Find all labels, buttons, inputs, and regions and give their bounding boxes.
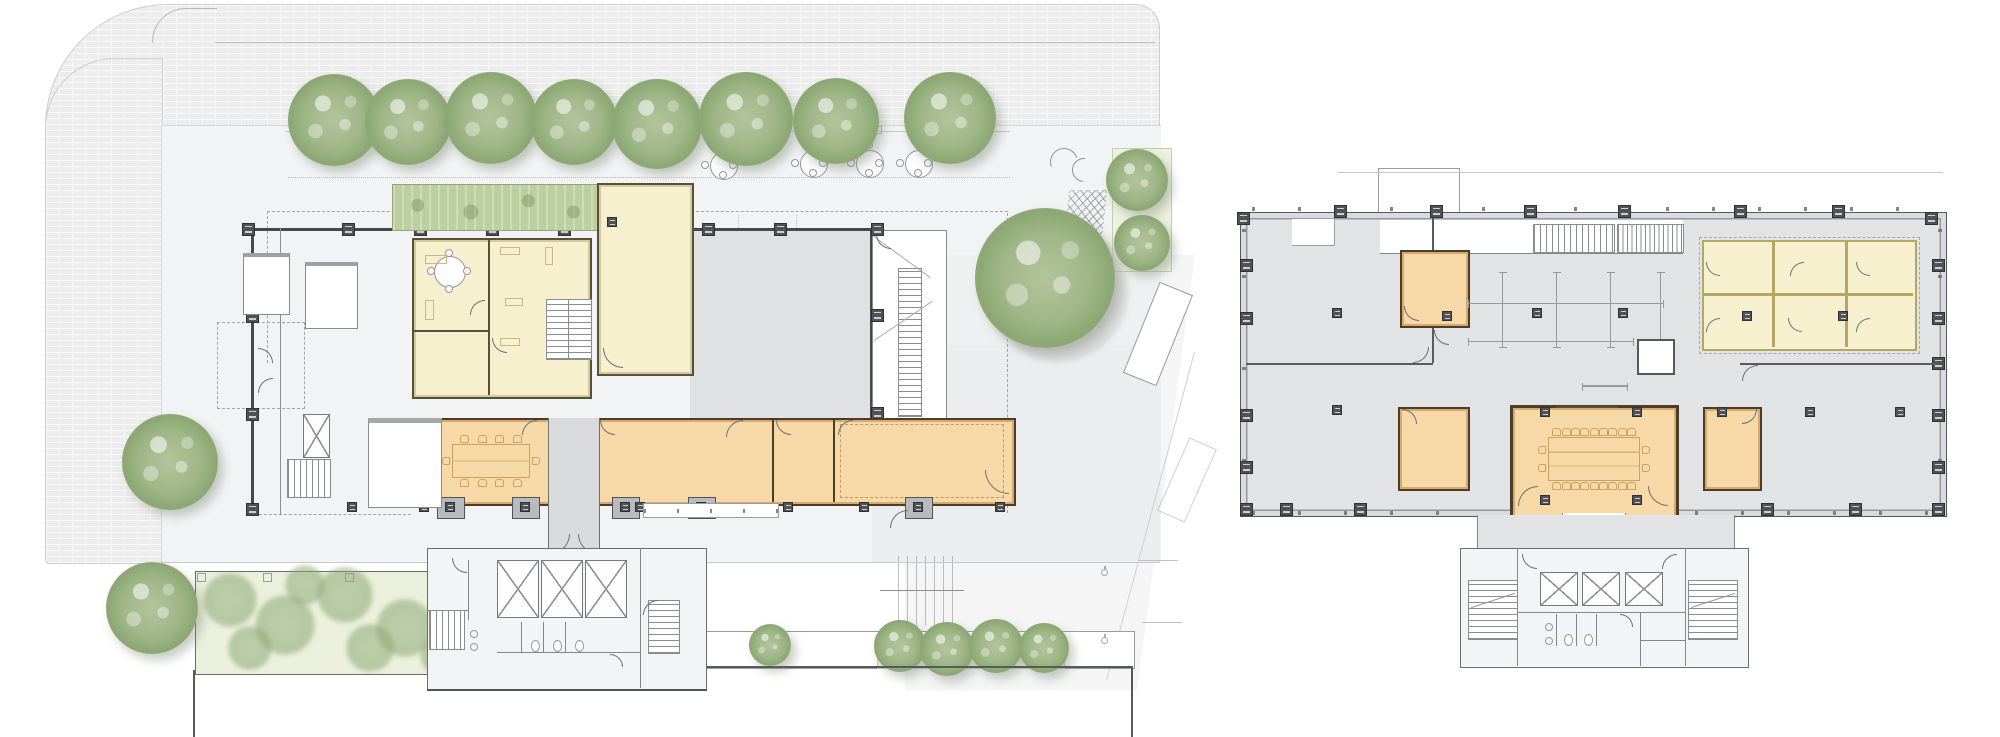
- cafe-chair: [701, 161, 709, 169]
- roof-hedge-strip: [392, 184, 599, 231]
- meeting-chair: [427, 267, 435, 275]
- stair-divider: [568, 299, 569, 358]
- elevator-shaft: [1625, 572, 1663, 606]
- partition-track: [1502, 272, 1503, 348]
- band-wall: [772, 418, 774, 502]
- elevator-shaft: [497, 560, 539, 618]
- office-stair: [546, 299, 592, 360]
- core-wall: [1517, 612, 1685, 613]
- street-tree: [365, 79, 451, 165]
- column-marker: [1240, 503, 1253, 516]
- column-marker: [1632, 407, 1642, 417]
- access-ramp: [898, 556, 958, 626]
- toilet-fixture: [531, 640, 540, 652]
- toilet-stall: [521, 622, 522, 652]
- column-marker: [1925, 212, 1938, 225]
- conference-chair: [513, 479, 522, 487]
- office-desk: [425, 255, 447, 264]
- column-marker: [1334, 205, 1347, 218]
- column-marker: [1717, 407, 1727, 417]
- cafe-chair: [875, 159, 883, 167]
- toilet-stall: [1596, 614, 1597, 646]
- column-marker: [1932, 259, 1945, 272]
- column-marker: [1280, 503, 1293, 516]
- column-marker: [774, 223, 787, 236]
- column-marker: [1442, 311, 1452, 321]
- elevator-shaft: [585, 560, 627, 618]
- conference-chair: [1571, 482, 1580, 490]
- conference-chair: [1627, 482, 1636, 490]
- partition-track: [1556, 272, 1557, 348]
- bed-shrub: [203, 573, 257, 627]
- column-marker: [1332, 308, 1342, 318]
- conference-chair: [460, 435, 469, 443]
- office-desk: [500, 247, 520, 255]
- conference-chair: [1580, 428, 1589, 436]
- elevator-shaft: [1540, 572, 1578, 606]
- bed-planter-box: [263, 573, 272, 582]
- street-tree: [531, 79, 617, 165]
- core-wall: [1517, 548, 1518, 666]
- canopy-dashed-rect: [217, 322, 305, 409]
- column-marker: [607, 217, 617, 227]
- partition-track: [1582, 385, 1628, 387]
- courtyard-tree: [975, 208, 1115, 348]
- conference-chair: [495, 479, 504, 487]
- conference-chair: [1552, 482, 1561, 490]
- hedge-bush: [874, 620, 926, 672]
- toilet-stall: [543, 622, 544, 652]
- core-wall: [1640, 612, 1641, 666]
- toilet-fixture: [575, 640, 584, 652]
- column-marker: [1332, 405, 1342, 415]
- conference-chair: [1590, 428, 1599, 436]
- column-marker: [1354, 503, 1367, 516]
- canopy-dashed-line: [249, 514, 411, 515]
- column-marker: [620, 502, 630, 512]
- column-marker: [1540, 407, 1550, 417]
- strip-tree: [1114, 215, 1170, 271]
- interior-wall: [1246, 363, 1433, 365]
- toilet-fixture: [553, 640, 562, 652]
- conference-chair: [1618, 482, 1627, 490]
- street-tree: [793, 78, 879, 164]
- elevator-shaft: [541, 560, 583, 618]
- planter-tree: [749, 624, 791, 666]
- bed-planter-box: [197, 573, 206, 582]
- west-stair: [287, 459, 331, 498]
- conference-chair: [1599, 482, 1608, 490]
- core-wall: [1640, 640, 1685, 641]
- street-tree: [612, 79, 702, 169]
- cafe-chair: [896, 159, 904, 167]
- toilet-stall: [565, 622, 566, 652]
- column-marker: [1430, 205, 1443, 218]
- conference-chair: [1608, 482, 1617, 490]
- core-stair: [1468, 580, 1518, 640]
- column-marker: [783, 502, 793, 512]
- operable-partition-zone: [840, 424, 1004, 498]
- bed-shrub: [346, 624, 394, 672]
- nw-notch: [1292, 219, 1335, 246]
- cafe-chair: [719, 171, 727, 179]
- stair-run: [1617, 224, 1684, 253]
- white-room: [368, 418, 442, 508]
- core-wall: [497, 652, 640, 653]
- toilet-fixture: [1584, 634, 1593, 646]
- column-marker: [1618, 308, 1628, 318]
- conference-chair: [1562, 428, 1571, 436]
- column-marker: [913, 502, 923, 512]
- conference-table-10: [452, 444, 530, 478]
- column-marker: [1240, 312, 1253, 325]
- ramp-axis: [880, 590, 964, 591]
- conference-chair: [1538, 446, 1546, 454]
- south-window-band: [643, 503, 779, 518]
- conference-chair: [1580, 482, 1589, 490]
- column-marker: [246, 503, 259, 516]
- conference-chair: [495, 435, 504, 443]
- partition-track: [1468, 303, 1664, 304]
- column-marker: [1734, 205, 1747, 218]
- conference-chair: [1642, 446, 1650, 454]
- wheelchair-icon: [1100, 634, 1109, 645]
- cafe-chair: [791, 159, 799, 167]
- column-marker: [347, 502, 357, 512]
- central-corridor: [548, 418, 600, 502]
- west-elevator: [303, 414, 330, 458]
- street-tree: [904, 72, 996, 164]
- core-stair: [429, 610, 465, 650]
- exterior-stair: [898, 268, 922, 417]
- sink: [470, 630, 478, 638]
- conference-chair: [1627, 428, 1636, 436]
- cafe-chair: [865, 169, 873, 177]
- meeting-chair: [463, 267, 471, 275]
- parking-dash: [1142, 622, 1182, 623]
- office-desk: [545, 247, 553, 265]
- partition-track: [1610, 272, 1611, 348]
- conference-chair: [1599, 428, 1608, 436]
- column-marker: [1805, 407, 1815, 417]
- parking-dash: [1138, 560, 1178, 561]
- column-marker: [1832, 205, 1845, 218]
- meeting-chair: [445, 285, 453, 293]
- conference-chair: [478, 479, 487, 487]
- bed-shrub: [228, 626, 272, 670]
- bed-planter-box: [345, 573, 354, 582]
- office-desk: [505, 298, 523, 306]
- toilet-stall: [1576, 614, 1577, 646]
- column-marker: [1240, 461, 1253, 474]
- conference-chair: [1608, 428, 1617, 436]
- sink: [1545, 637, 1553, 645]
- wheelchair-icon: [1100, 566, 1109, 577]
- strip-tree: [1106, 149, 1168, 211]
- column-marker: [702, 223, 715, 236]
- site-boundary-south: [700, 666, 1133, 668]
- conference-chair: [1618, 428, 1627, 436]
- sink: [1545, 623, 1553, 631]
- conference-chair: [532, 457, 540, 465]
- column-marker: [246, 408, 259, 421]
- office-desk: [425, 300, 434, 320]
- conference-chair: [1552, 428, 1561, 436]
- column-marker: [1932, 312, 1945, 325]
- conference-chair: [1571, 428, 1580, 436]
- column-marker: [342, 223, 355, 236]
- toilet-stall: [1556, 614, 1557, 646]
- column-marker: [445, 502, 455, 512]
- column-marker: [871, 223, 884, 236]
- column-marker: [1240, 409, 1253, 422]
- bed-shrub: [285, 565, 325, 605]
- column-marker: [871, 309, 884, 322]
- column-marker: [242, 223, 255, 236]
- grid-wall: [1702, 293, 1913, 296]
- band-wall: [833, 418, 835, 502]
- partition-track: [1660, 272, 1661, 348]
- column-marker: [1524, 205, 1537, 218]
- yellow-grid-room: [1702, 240, 1917, 351]
- column-marker: [1849, 503, 1862, 516]
- conference-chair: [1538, 464, 1546, 472]
- column-marker: [1540, 495, 1550, 505]
- conference-chair: [513, 435, 522, 443]
- hedge-bush: [969, 619, 1023, 673]
- core-wall: [468, 560, 469, 620]
- conference-chair: [478, 435, 487, 443]
- cafe-chair: [809, 169, 817, 177]
- core-stair: [1688, 580, 1738, 640]
- conference-chair: [442, 457, 450, 465]
- column-marker: [1895, 407, 1905, 417]
- conference-table-22: [1548, 437, 1640, 481]
- elevator-shaft: [1582, 572, 1620, 606]
- side-tree: [106, 562, 198, 654]
- conference-chair: [1642, 464, 1650, 472]
- small-room: [1703, 407, 1762, 491]
- side-tree: [122, 414, 218, 510]
- conference-chair: [1590, 482, 1599, 490]
- office-wall: [412, 330, 490, 332]
- conference-chair: [1562, 482, 1571, 490]
- room-recess: [1556, 406, 1618, 408]
- site-boundary-east: [1131, 666, 1133, 737]
- sink: [470, 643, 478, 651]
- plaza-kiosk: [305, 262, 358, 329]
- column-marker: [1838, 311, 1848, 321]
- cafe-chair: [914, 169, 922, 177]
- column-marker: [1742, 311, 1752, 321]
- column-marker: [1618, 205, 1631, 218]
- tree-pit-line: [288, 177, 1010, 178]
- column-marker: [1237, 212, 1250, 225]
- street-tree: [445, 72, 537, 164]
- core-wall: [640, 548, 641, 688]
- core-connector: [1477, 515, 1735, 548]
- stair-run: [1533, 224, 1615, 253]
- column-marker: [1532, 308, 1542, 318]
- office-wall: [488, 238, 490, 395]
- column-marker: [1240, 259, 1253, 272]
- column-marker: [1632, 495, 1642, 505]
- roof-terrace-line: [1338, 172, 1943, 173]
- column-marker: [859, 502, 869, 512]
- street-tree: [699, 72, 793, 166]
- shaft-box: [1637, 339, 1675, 375]
- curb-line: [215, 42, 1155, 43]
- column-marker: [1932, 409, 1945, 422]
- core-wall: [1685, 548, 1686, 666]
- column-marker: [1932, 503, 1945, 516]
- conference-chair: [460, 479, 469, 487]
- column-marker: [520, 502, 530, 512]
- floor-plan-canvas: [0, 0, 2000, 737]
- open-hall: [690, 228, 872, 420]
- interior-wall: [1740, 363, 1937, 365]
- toilet-fixture: [1564, 634, 1573, 646]
- column-marker: [1761, 503, 1774, 516]
- west-room: [243, 253, 290, 315]
- site-boundary-west: [193, 670, 195, 737]
- column-marker: [995, 502, 1005, 512]
- column-marker: [1932, 461, 1945, 474]
